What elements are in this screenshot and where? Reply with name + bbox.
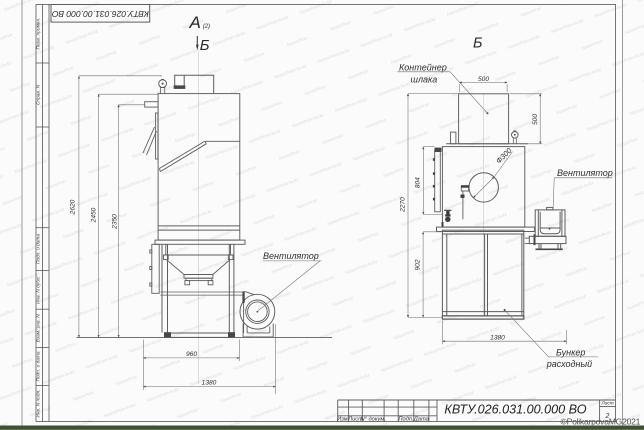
svg-text:А: А	[189, 13, 201, 32]
svg-text:Вентилятор: Вентилятор	[263, 251, 319, 261]
svg-text:Подп.: Подп.	[398, 416, 413, 422]
svg-text:Взам. инв. N: Взам. инв. N	[36, 314, 42, 342]
svg-text:902: 902	[415, 259, 422, 270]
svg-text:Подп. и дата: Подп. и дата	[36, 234, 42, 264]
svg-text:Инв. N подл.: Инв. N подл.	[36, 389, 42, 417]
svg-text:Б: Б	[200, 37, 210, 54]
svg-text:2270: 2270	[399, 197, 406, 213]
svg-text:Дата: Дата	[413, 416, 429, 422]
svg-text:Вентилятор: Вентилятор	[557, 168, 613, 178]
svg-text:(2): (2)	[203, 24, 210, 30]
svg-text:Инв. N дубл.: Инв. N дубл.	[36, 276, 42, 304]
svg-text:Б: Б	[473, 36, 482, 52]
svg-text:2620: 2620	[70, 199, 77, 215]
svg-text:расходный: расходный	[546, 359, 592, 369]
svg-text:КВТУ.026.031.00.000 ВО: КВТУ.026.031.00.000 ВО	[52, 9, 149, 19]
svg-text:Справ. N: Справ. N	[36, 84, 42, 105]
svg-text:960: 960	[186, 351, 197, 358]
svg-text:2350: 2350	[112, 214, 119, 230]
svg-text:шлака: шлака	[411, 75, 438, 85]
svg-text:Контейнер: Контейнер	[399, 63, 447, 73]
svg-text:©PolikarpovaMG2021: ©PolikarpovaMG2021	[561, 416, 641, 426]
svg-text:2450: 2450	[91, 207, 98, 223]
svg-text:Перв. примен.: Перв. примен.	[36, 18, 42, 50]
svg-text:Бункер: Бункер	[556, 348, 585, 358]
svg-text:804: 804	[415, 177, 422, 188]
svg-text:1380: 1380	[490, 334, 505, 341]
svg-text:Лист: Лист	[600, 401, 613, 407]
svg-text:1380: 1380	[202, 379, 217, 386]
svg-text:N° докум.: N° докум.	[361, 416, 386, 422]
svg-text:500: 500	[532, 114, 539, 125]
svg-text:КВТУ.026.031.00.000 ВО: КВТУ.026.031.00.000 ВО	[444, 403, 586, 417]
svg-text:Подп. и дата: Подп. и дата	[36, 351, 42, 381]
svg-text:500: 500	[478, 76, 489, 83]
